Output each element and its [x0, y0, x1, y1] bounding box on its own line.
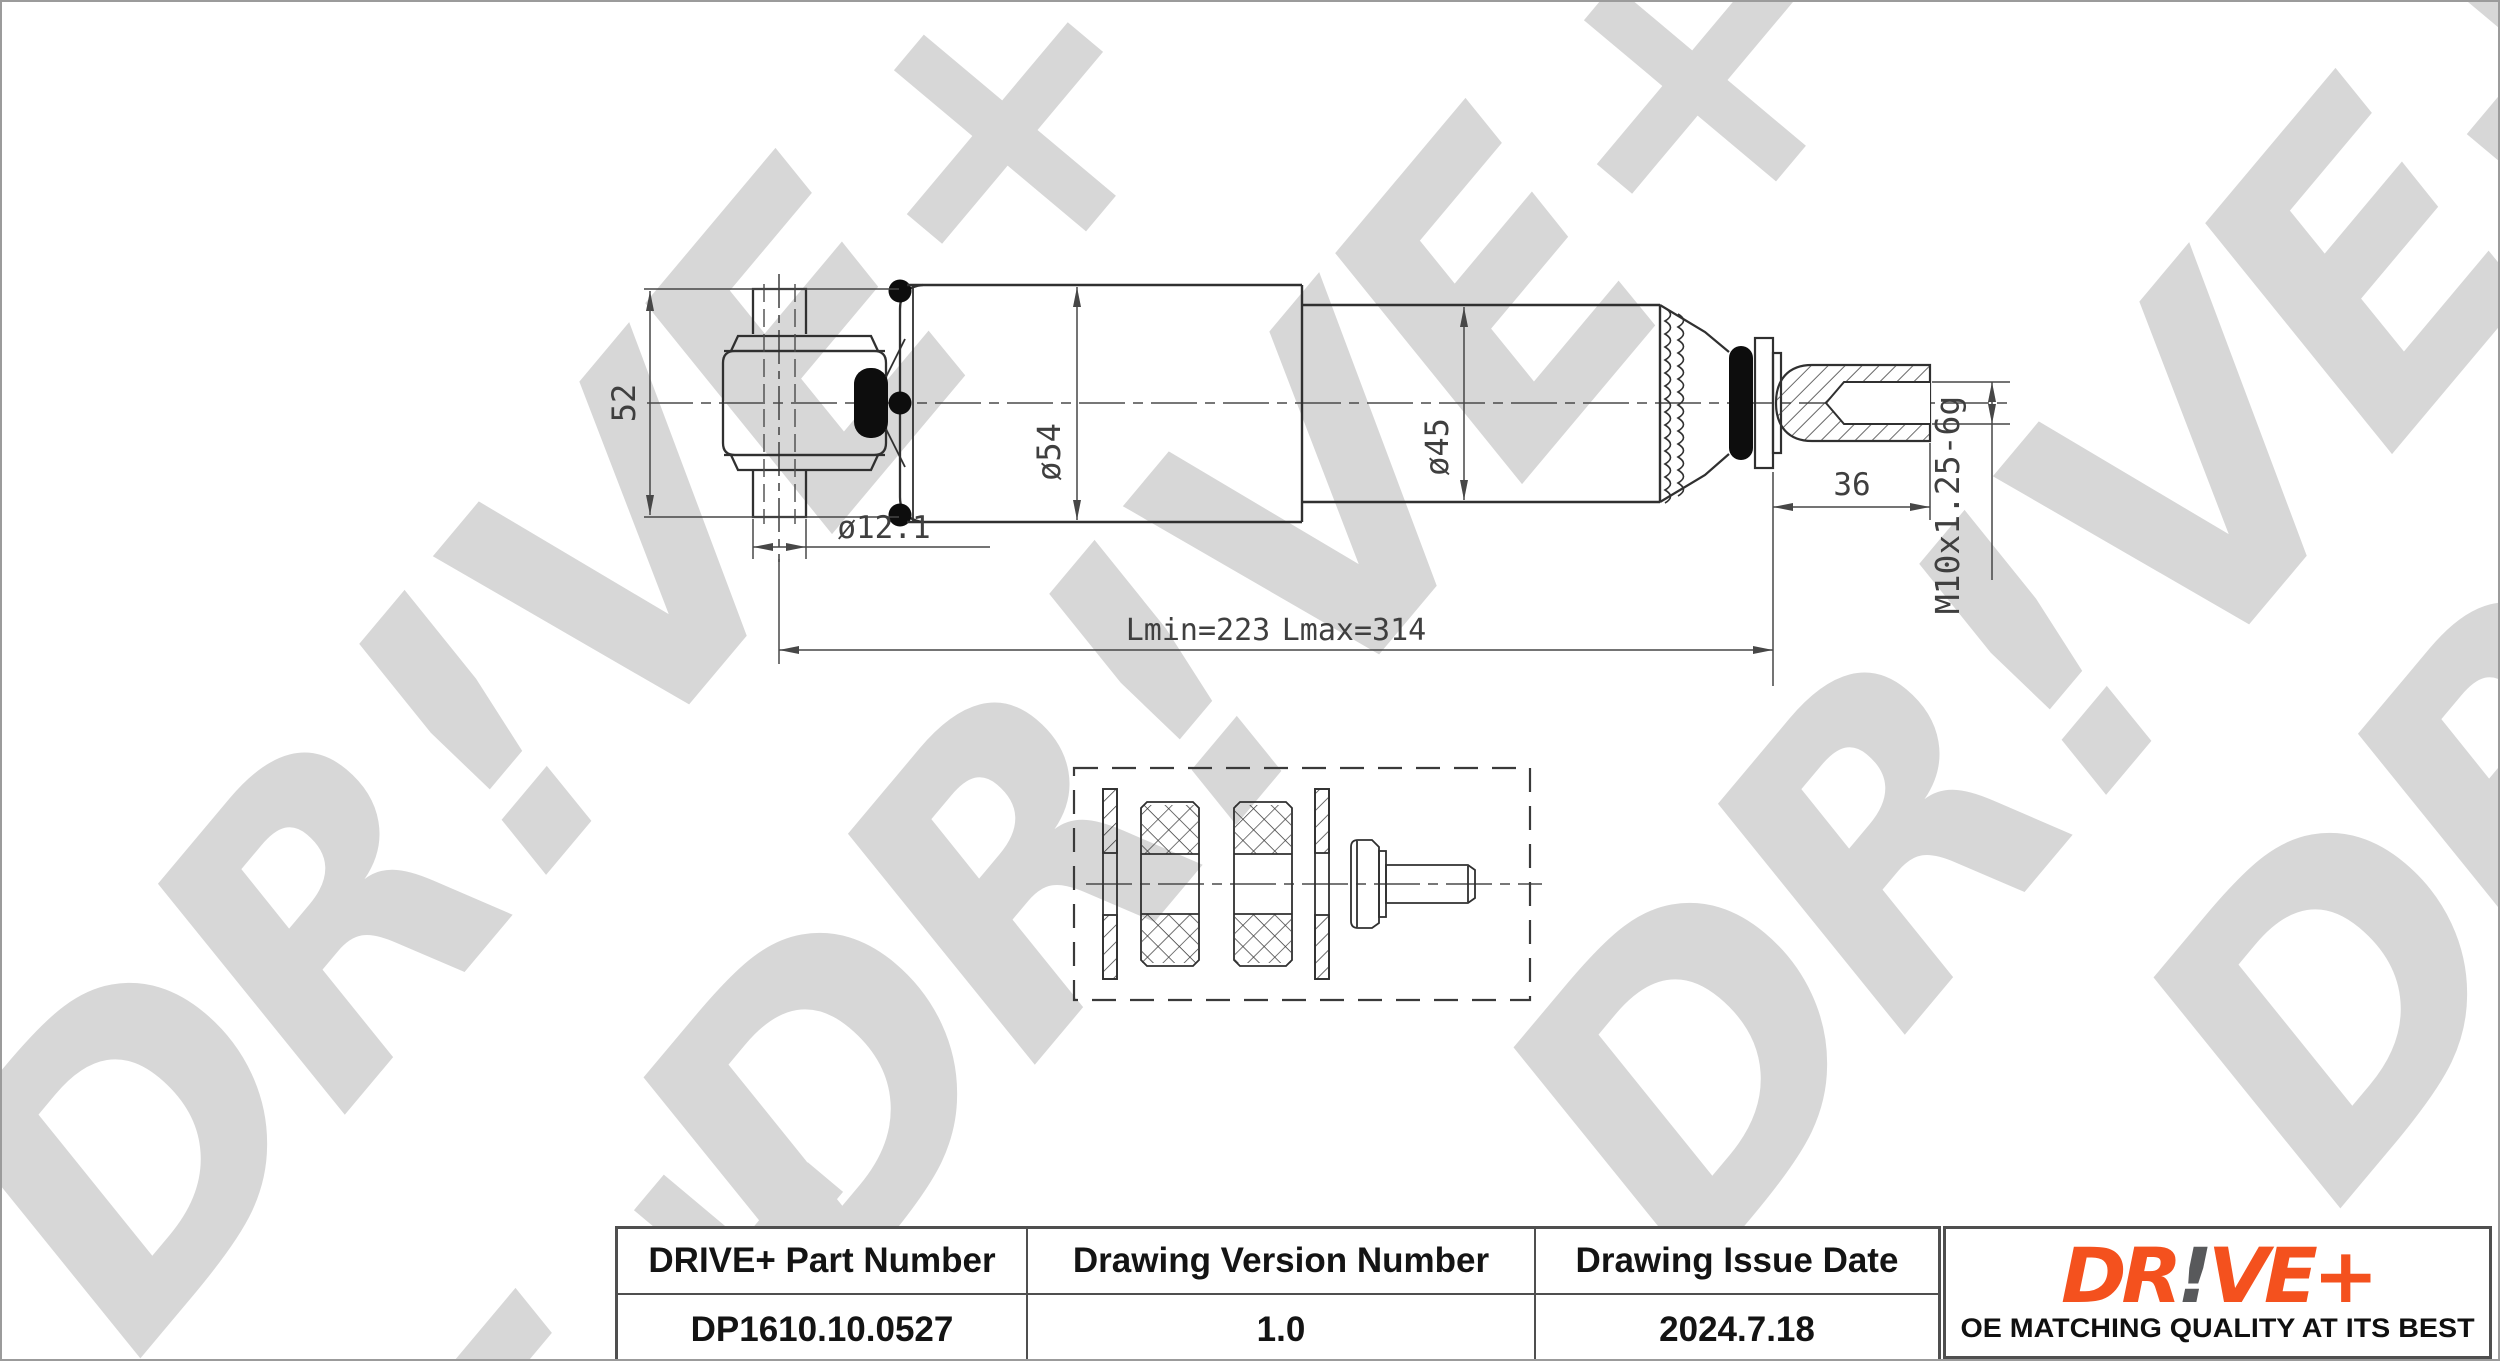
dim-body-diameter: ø54 — [1030, 423, 1068, 481]
title-block-table: DRIVE+ Part Number Drawing Version Numbe… — [615, 1226, 1941, 1361]
shock-absorber-drawing: 52 ø12.1 ø54 ø45 36 M10x1.25-6g Lmin=223… — [2, 2, 2498, 1359]
table-value-version: 1.0 — [1028, 1295, 1536, 1361]
dim-eye-height: 52 — [605, 384, 643, 423]
threaded-rod-section — [1776, 365, 1930, 441]
logo-ve-plus: VE+ — [2208, 1231, 2374, 1320]
brand-tagline: OE MATCHING QUALITY AT ITS BEST — [1960, 1313, 2474, 1344]
bump-ring — [1729, 346, 1753, 460]
table-header-part-number: DRIVE+ Part Number — [618, 1229, 1028, 1295]
dim-length-max: Lmax=314 — [1282, 613, 1427, 648]
dim-thread-length: 36 — [1833, 467, 1870, 503]
dim-eye-bore: ø12.1 — [837, 510, 930, 546]
logo-dr: DR — [2061, 1231, 2177, 1320]
dim-thread-spec: M10x1.25-6g — [1928, 396, 1967, 615]
table-value-issue-date: 2024.7.18 — [1536, 1295, 1938, 1361]
table-header-version: Drawing Version Number — [1028, 1229, 1536, 1295]
table-header-issue-date: Drawing Issue Date — [1536, 1229, 1938, 1295]
brand-logo: DR!VE+ — [2061, 1241, 2374, 1311]
dim-length-min: Lmin=223 — [1126, 613, 1271, 648]
logo-bang: ! — [2177, 1231, 2208, 1320]
drawing-sheet: DR!VE+ DR!VE+ DR!VE+ DR!VE+ DR!VE+ — [0, 0, 2500, 1361]
dim-tube-diameter: ø45 — [1418, 418, 1456, 476]
table-value-part-number: DP1610.10.0527 — [618, 1295, 1028, 1361]
brand-logo-box: DR!VE+ OE MATCHING QUALITY AT ITS BEST — [1943, 1226, 2492, 1359]
crimped-end — [1660, 305, 1729, 503]
